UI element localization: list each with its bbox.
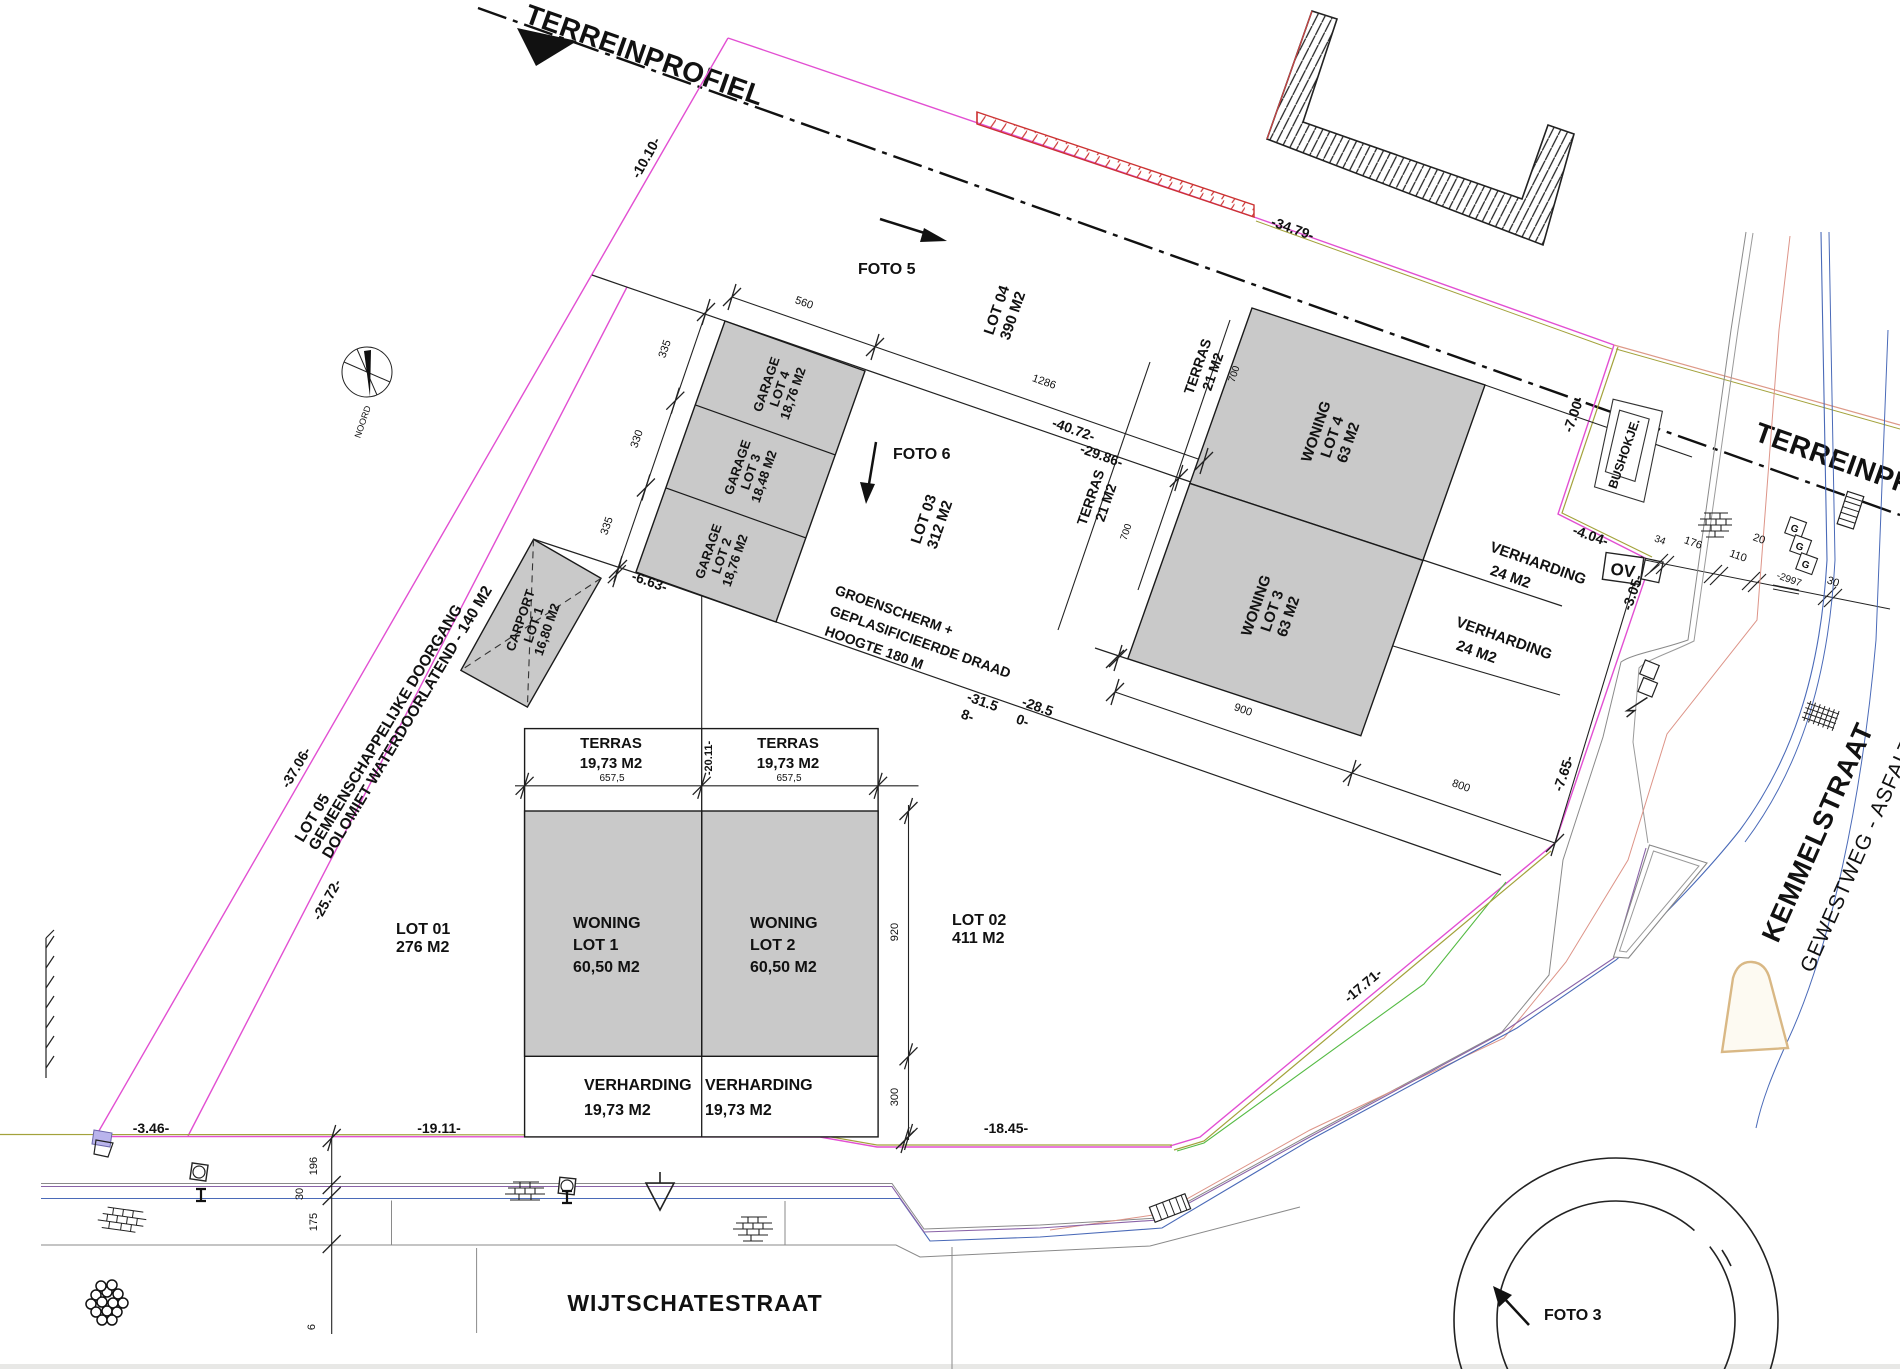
svg-text:FOTO 5: FOTO 5 bbox=[858, 261, 916, 278]
svg-text:VERHARDING: VERHARDING bbox=[584, 1077, 692, 1094]
svg-text:920: 920 bbox=[889, 923, 901, 941]
svg-text:300: 300 bbox=[889, 1088, 901, 1106]
svg-text:WONING: WONING bbox=[750, 915, 818, 932]
svg-text:LOT 02: LOT 02 bbox=[952, 912, 1006, 929]
svg-text:196: 196 bbox=[308, 1157, 320, 1175]
svg-text:-20.11-: -20.11- bbox=[703, 741, 715, 776]
svg-text:FOTO 6: FOTO 6 bbox=[893, 446, 951, 463]
svg-text:30: 30 bbox=[294, 1188, 306, 1200]
svg-text:TERRAS: TERRAS bbox=[580, 735, 642, 752]
svg-text:657,5: 657,5 bbox=[599, 773, 624, 784]
svg-text:276 M2: 276 M2 bbox=[396, 939, 449, 956]
svg-text:WONING: WONING bbox=[573, 915, 641, 932]
svg-text:WIJTSCHATESTRAAT: WIJTSCHATESTRAAT bbox=[567, 1290, 822, 1316]
svg-text:19,73 M2: 19,73 M2 bbox=[705, 1102, 772, 1119]
svg-text:19,73 M2: 19,73 M2 bbox=[757, 755, 820, 772]
svg-text:6: 6 bbox=[306, 1324, 318, 1330]
svg-text:411 M2: 411 M2 bbox=[952, 930, 1005, 947]
svg-text:VERHARDING: VERHARDING bbox=[705, 1077, 813, 1094]
svg-text:175: 175 bbox=[308, 1213, 320, 1231]
svg-text:LOT 2: LOT 2 bbox=[750, 937, 795, 954]
svg-text:-3.46-: -3.46- bbox=[133, 1120, 170, 1136]
svg-text:19,73 M2: 19,73 M2 bbox=[580, 755, 643, 772]
svg-text:LOT 01: LOT 01 bbox=[396, 921, 450, 938]
svg-text:FOTO 3: FOTO 3 bbox=[1544, 1307, 1602, 1324]
svg-text:TERRAS: TERRAS bbox=[757, 735, 819, 752]
svg-text:-18.45-: -18.45- bbox=[984, 1120, 1029, 1136]
svg-text:60,50 M2: 60,50 M2 bbox=[750, 959, 817, 976]
svg-text:60,50 M2: 60,50 M2 bbox=[573, 959, 640, 976]
svg-text:LOT 1: LOT 1 bbox=[573, 937, 618, 954]
svg-text:19,73 M2: 19,73 M2 bbox=[584, 1102, 651, 1119]
svg-text:657,5: 657,5 bbox=[776, 773, 801, 784]
svg-text:-19.11-: -19.11- bbox=[417, 1120, 461, 1136]
